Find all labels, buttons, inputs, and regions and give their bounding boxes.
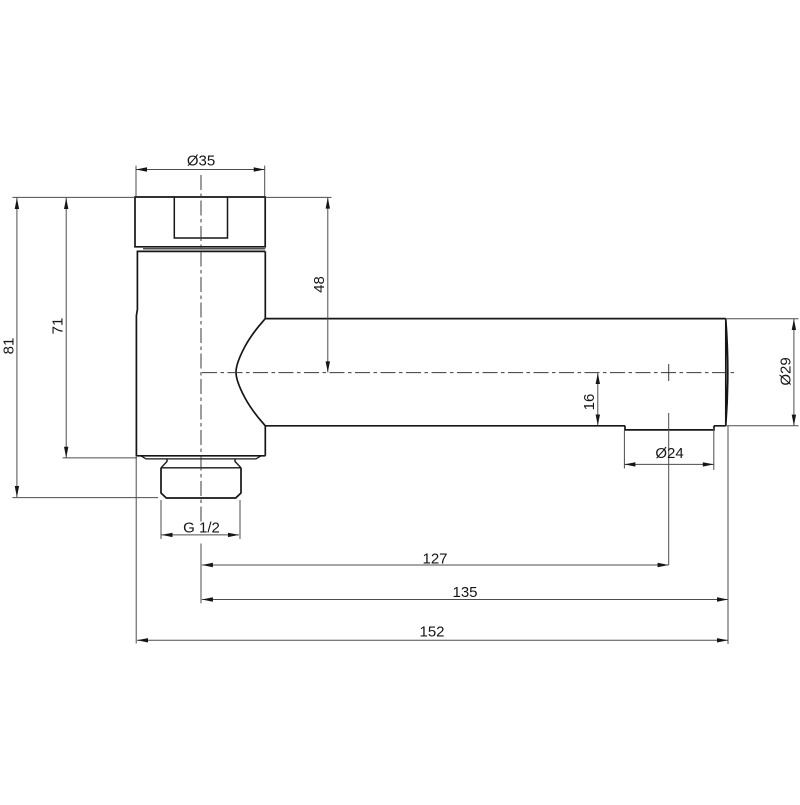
svg-text:135: 135 [452,584,477,601]
svg-text:Ø24: Ø24 [655,445,683,462]
svg-text:48: 48 [311,276,328,293]
svg-text:81: 81 [1,338,18,355]
svg-text:Ø35: Ø35 [187,153,215,170]
svg-text:71: 71 [50,318,67,335]
svg-text:152: 152 [419,623,444,640]
svg-text:127: 127 [422,551,447,568]
svg-text:G 1/2: G 1/2 [183,520,220,537]
svg-text:16: 16 [581,394,598,411]
svg-text:Ø29: Ø29 [777,357,794,385]
